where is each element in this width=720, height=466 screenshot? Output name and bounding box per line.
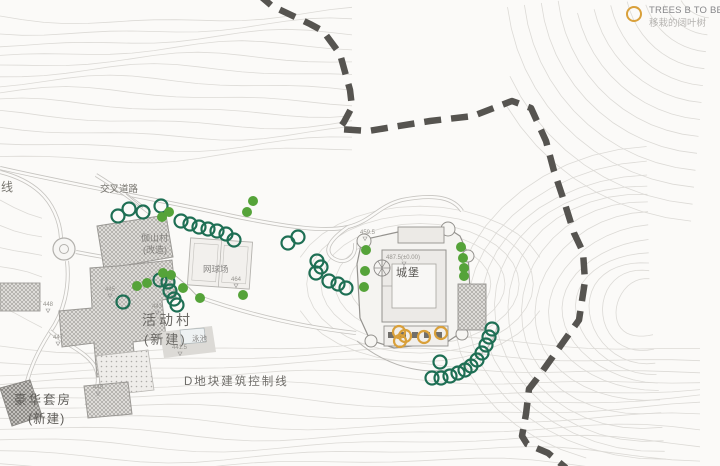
map-label: 网球场 [203, 264, 229, 274]
level-marker-icon [56, 342, 60, 346]
map-label: (新建) [28, 411, 65, 426]
legend-tree-to-move: TREES B TO BE M 移栽的阔叶树 [626, 4, 720, 30]
tree-marker-evergreen [332, 278, 345, 291]
tree-marker-existing [459, 271, 469, 281]
legend-label-zh: 移栽的阔叶树 [649, 17, 720, 30]
tree-marker-evergreen [444, 370, 457, 383]
map-label: 445 [105, 287, 116, 293]
tree-marker-existing [359, 282, 369, 292]
tree-marker-existing [360, 266, 370, 276]
map-label: 448 [43, 302, 54, 308]
legend-label-en: TREES B TO BE M [649, 4, 720, 17]
tree-marker-existing [238, 290, 248, 300]
map-label: 447 [53, 335, 64, 341]
tree-marker-evergreen [434, 356, 447, 369]
map-label: 城堡 [396, 265, 420, 279]
map-label: D地块建筑控制线 [184, 374, 289, 388]
tree-marker-evergreen [292, 231, 305, 244]
tree-marker-existing [248, 196, 258, 206]
map-label: 泳池 [192, 333, 207, 343]
map-label: 伽山村 [141, 232, 168, 243]
level-marker-icon [46, 309, 50, 313]
map-label: 交叉道路 [100, 183, 139, 195]
tree-marker-existing [195, 293, 205, 303]
tree-marker-existing [242, 207, 252, 217]
tree-marker-existing [178, 283, 188, 293]
map-label: 464 [231, 277, 242, 283]
tree-marker-evergreen [202, 223, 215, 236]
tree-marker-evergreen [211, 225, 224, 238]
site-plan-page: { "legend": { "tree_move": { "label_en":… [0, 0, 720, 466]
map-label: (改造) [143, 244, 167, 255]
tree-marker-existing [458, 253, 468, 263]
tree-marker-evergreen [340, 282, 353, 295]
tree-marker-existing [361, 245, 371, 255]
tree-marker-existing [142, 278, 152, 288]
tree-marker-evergreen [175, 215, 188, 228]
tree-marker-existing [166, 270, 176, 280]
map-label: 487.5(±0.00) [386, 255, 420, 261]
building-luxury-suite-2 [84, 382, 132, 418]
map-label: 豪华套房 [14, 392, 72, 407]
map-label: 443 [152, 304, 163, 310]
tree-marker-evergreen [323, 275, 336, 288]
map-label: 441.5 [172, 345, 188, 351]
tree-marker-existing [456, 242, 466, 252]
tree-marker-evergreen [193, 221, 206, 234]
tree-marker-evergreen [123, 203, 136, 216]
map-label: 459.5 [360, 230, 376, 236]
tree-marker-evergreen [184, 218, 197, 231]
roundabout [53, 238, 75, 260]
site-plan-canvas: 线交叉道路伽山村(改造)网球场活动村(新建)泳池D地块建筑控制线豪华套房(新建)… [0, 0, 720, 466]
buildings [0, 215, 486, 426]
tree-marker-existing [164, 207, 174, 217]
tree-to-move-legend-icon [626, 6, 642, 22]
map-label: 线 [1, 180, 13, 194]
map-label: 448 [93, 385, 104, 391]
building-left [0, 283, 40, 311]
tree-marker-evergreen [435, 372, 448, 385]
map-label: 活动村 [142, 312, 193, 328]
tree-marker-existing [132, 281, 142, 291]
